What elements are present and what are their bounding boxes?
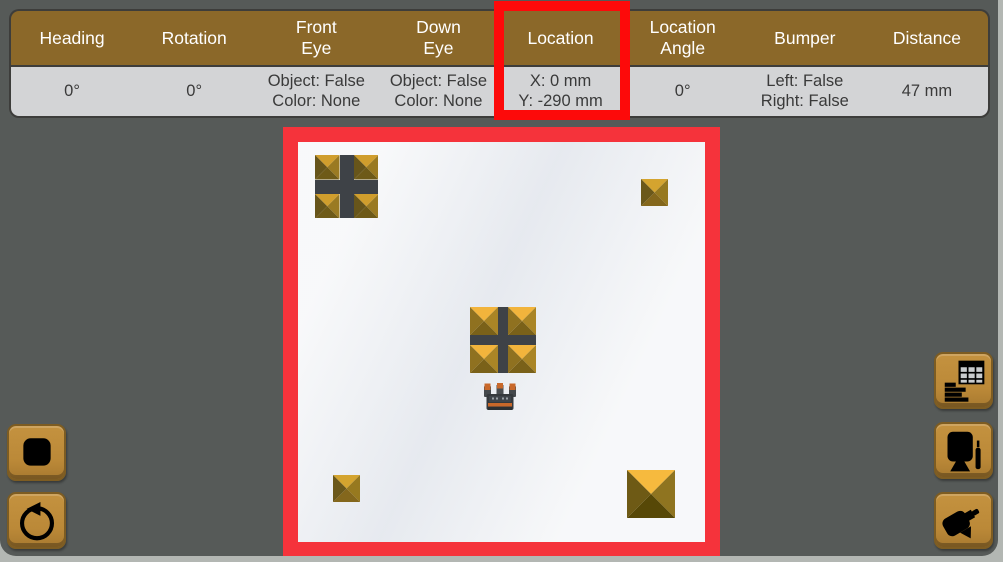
column-header-front-eye: FrontEye	[255, 11, 377, 65]
reset-arrow-icon	[14, 498, 60, 544]
field-object-robot	[484, 383, 516, 411]
field-object-pyramid-top-right	[641, 179, 668, 206]
sensor-value-row: 0°0°Object: FalseColor: NoneObject: Fals…	[9, 65, 990, 118]
column-header-distance: Distance	[866, 11, 988, 65]
monitor-button[interactable]	[934, 422, 993, 479]
column-value-bumper: Left: FalseRight: False	[744, 67, 866, 116]
field-floor	[298, 142, 705, 542]
column-value-down-eye: Object: FalseColor: None	[377, 67, 499, 116]
sensor-table: HeadingRotationFrontEyeDownEyeLocationLo…	[9, 9, 990, 118]
stop-button[interactable]	[7, 424, 66, 481]
monitor-pen-icon	[942, 429, 986, 473]
field-object-pyramid-bottom-right	[627, 470, 675, 518]
column-value-heading: 0°	[11, 67, 133, 116]
sensor-data-button[interactable]	[934, 352, 993, 409]
column-value-distance: 47 mm	[866, 67, 988, 116]
column-header-rotation: Rotation	[133, 11, 255, 65]
column-value-location: X: 0 mmY: -290 mm	[500, 67, 622, 116]
camera-button[interactable]	[934, 492, 993, 549]
camera-icon	[941, 498, 987, 544]
column-value-rotation: 0°	[133, 67, 255, 116]
field-object-pyramid-bottom-left	[333, 475, 360, 502]
column-header-down-eye: DownEye	[377, 11, 499, 65]
sensor-header-row: HeadingRotationFrontEyeDownEyeLocationLo…	[9, 9, 990, 65]
column-header-bumper: Bumper	[744, 11, 866, 65]
app-window: HeadingRotationFrontEyeDownEyeLocationLo…	[0, 0, 1003, 562]
column-header-location-angle: LocationAngle	[622, 11, 744, 65]
field-view[interactable]	[283, 127, 720, 556]
stop-square-icon	[16, 432, 58, 474]
reset-button[interactable]	[7, 492, 66, 549]
main-panel: HeadingRotationFrontEyeDownEyeLocationLo…	[0, 0, 998, 556]
column-header-heading: Heading	[11, 11, 133, 65]
data-table-icon	[942, 359, 986, 403]
column-header-location: Location	[500, 11, 622, 65]
column-value-location-angle: 0°	[622, 67, 744, 116]
field-object-cross-block-top-left	[315, 155, 378, 218]
field-object-cross-block-center	[470, 307, 536, 373]
column-value-front-eye: Object: FalseColor: None	[255, 67, 377, 116]
